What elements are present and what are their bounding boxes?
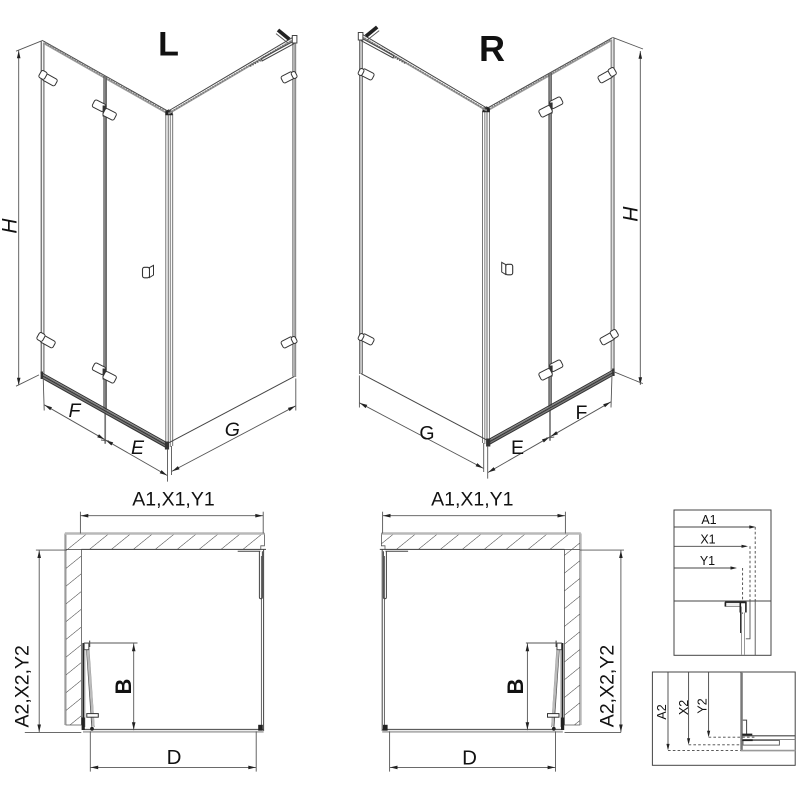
svg-text:F: F: [69, 400, 82, 422]
svg-text:F: F: [576, 402, 588, 424]
svg-text:A1: A1: [701, 513, 716, 527]
svg-text:X2: X2: [677, 700, 691, 715]
svg-text:E: E: [511, 437, 524, 459]
svg-text:A2,X2,Y2: A2,X2,Y2: [597, 645, 619, 727]
svg-text:B: B: [503, 679, 528, 695]
svg-text:R: R: [479, 28, 505, 69]
svg-text:D: D: [167, 746, 182, 769]
svg-text:A2: A2: [655, 704, 669, 719]
svg-text:A1,X1,Y1: A1,X1,Y1: [431, 489, 513, 511]
svg-text:B: B: [111, 679, 136, 695]
svg-text:G: G: [419, 423, 434, 445]
svg-text:H: H: [618, 206, 641, 222]
svg-text:Y2: Y2: [696, 698, 710, 713]
svg-text:Y1: Y1: [700, 554, 715, 568]
svg-text:A2,X2,Y2: A2,X2,Y2: [12, 645, 34, 727]
svg-text:G: G: [225, 419, 240, 441]
svg-text:D: D: [462, 747, 477, 770]
svg-text:X1: X1: [700, 533, 715, 547]
svg-text:E: E: [131, 437, 145, 459]
svg-text:L: L: [158, 26, 179, 64]
svg-text:A1,X1,Y1: A1,X1,Y1: [132, 489, 214, 511]
svg-text:H: H: [0, 218, 22, 234]
